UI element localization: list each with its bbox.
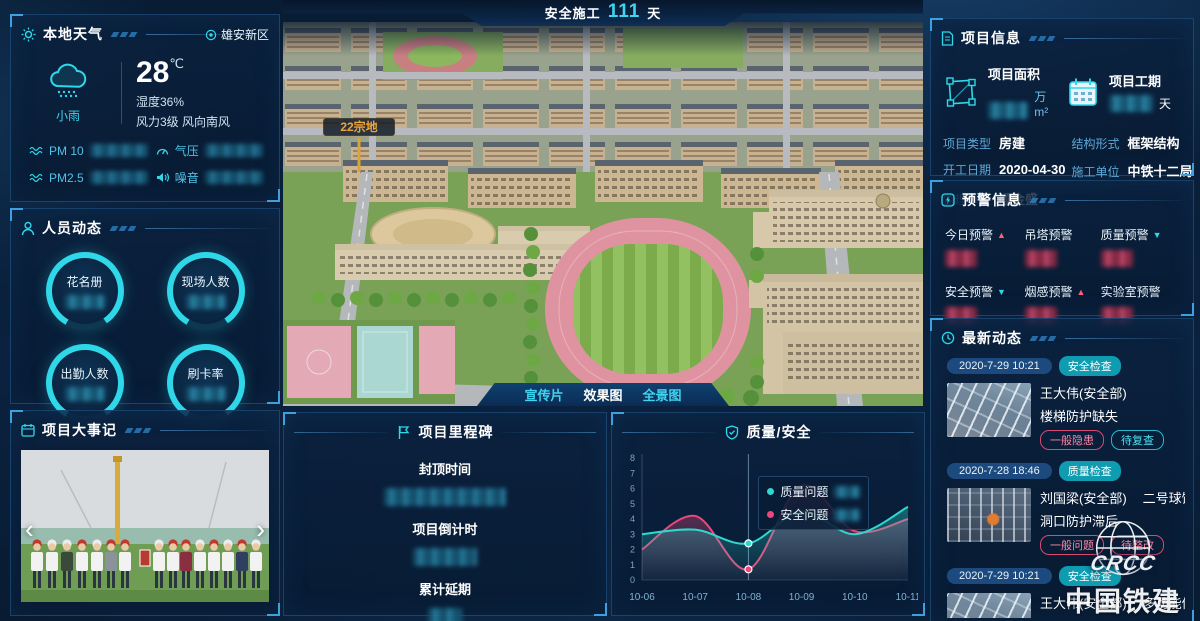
project-info-panel: 项目信息 项目面积 万m² 项目工期 天 xyxy=(930,18,1194,176)
info-label: 施工单位 xyxy=(1072,163,1120,180)
warning-label: 烟感预警 xyxy=(1025,283,1073,300)
ring-label: 刷卡率 xyxy=(187,365,223,382)
entry-date: 2020-7-29 10:21 xyxy=(947,358,1052,374)
entry-head: 2020-7-29 10:21安全检查 xyxy=(947,356,1185,376)
calendar-icon xyxy=(21,423,35,437)
pm-wave-icon xyxy=(29,146,43,156)
warning-label-row: 安全预警▼ xyxy=(945,283,1017,300)
data-point-marker xyxy=(745,540,752,547)
weather-metric-label: 气压 xyxy=(175,142,199,159)
project-duration-stat: 项目工期 天 xyxy=(1066,64,1181,119)
weather-panel: 本地天气 雄安新区 小雨 28℃ 湿度36% 风力3级 风向南风 PM 10气 xyxy=(10,14,280,202)
warnings-title: 预警信息 xyxy=(962,190,1022,210)
svg-text:3: 3 xyxy=(630,529,635,539)
entry-name-line: 王大伟(安全部) xyxy=(1040,383,1164,402)
cloud-rain-icon xyxy=(45,62,91,100)
weather-condition: 小雨 xyxy=(29,107,107,124)
up-trend-icon: ▲ xyxy=(1077,287,1086,297)
ring-label: 花名册 xyxy=(66,273,102,290)
aerial-render: 22宗地 xyxy=(283,22,923,406)
info-label: 结构形式 xyxy=(1072,135,1120,152)
weather-metric-4: 噪音 xyxy=(156,169,265,186)
info-row-2: 结构形式框架结构 xyxy=(1072,133,1193,152)
warning-label-row: 质量预警▼ xyxy=(1101,226,1179,243)
project-area-stat: 项目面积 万m² xyxy=(943,64,1058,119)
svg-text:5: 5 xyxy=(630,499,635,509)
personnel-title: 人员动态 xyxy=(42,218,102,238)
alert-lightning-icon xyxy=(941,193,955,207)
legend-label: 安全问题 xyxy=(780,506,828,523)
safety-days-unit: 天 xyxy=(647,3,661,22)
weather-metric-value-redacted xyxy=(205,144,263,157)
x-tick-label: 10-07 xyxy=(682,592,708,603)
noise-speaker-icon xyxy=(156,172,169,183)
weather-metric-value-redacted xyxy=(205,171,263,184)
milestone-label-1: 封顶时间 xyxy=(419,459,471,478)
issue-text: 楼梯防护缺失 xyxy=(1040,406,1164,425)
crane-mast xyxy=(115,456,120,544)
entry-text: 王大伟(安全部)楼梯防护缺失一般隐患待复查 xyxy=(1040,383,1164,450)
personnel-panel: 人员动态 花名册现场人数出勤人数刷卡率 xyxy=(10,208,280,404)
ring-label: 出勤人数 xyxy=(60,365,108,382)
project-area-value-redacted xyxy=(988,102,1028,119)
inspector-name: 刘国梁(安全部) xyxy=(1040,488,1127,507)
region-badge: 雄安新区 xyxy=(205,26,269,43)
events-title: 项目大事记 xyxy=(42,420,117,440)
progress-ring: 花名册 xyxy=(46,252,124,330)
status-tag: 待复查 xyxy=(1111,430,1164,450)
running-track xyxy=(545,218,751,400)
project-duration-unit: 天 xyxy=(1159,95,1171,112)
svg-text:2: 2 xyxy=(630,545,635,555)
entry-name-line: 刘国梁(安全部)二号球馆 xyxy=(1040,488,1185,507)
photo-prev-button[interactable]: ‹ xyxy=(25,516,34,542)
safety-days-count: 111 xyxy=(608,1,641,23)
document-icon xyxy=(941,31,954,46)
events-panel: 项目大事记 ‹ › xyxy=(10,410,280,616)
temperature-unit: ℃ xyxy=(169,56,184,71)
svg-text:7: 7 xyxy=(630,468,635,478)
svg-text:6: 6 xyxy=(630,484,635,494)
warning-item-1: 今日预警▲ xyxy=(945,226,1017,267)
data-point-marker xyxy=(745,566,752,573)
warning-label-row: 吊塔预警 xyxy=(1025,226,1093,243)
info-value: 框架结构 xyxy=(1128,133,1180,152)
legend-label: 质量问题 xyxy=(780,483,828,500)
quality-safety-chart: 01234567810-0610-0710-0810-0910-1010-11 … xyxy=(616,448,920,619)
x-tick-label: 10-06 xyxy=(629,592,655,603)
map-view-switcher: 宣传片效果图全景图 xyxy=(477,383,729,406)
project-area-label: 项目面积 xyxy=(988,64,1058,83)
sun-icon xyxy=(21,27,36,42)
feed-entry-1[interactable]: 2020-7-29 10:21安全检查王大伟(安全部)楼梯防护缺失一般隐患待复查 xyxy=(947,356,1185,450)
entry-head: 2020-7-28 18:46质量检查 xyxy=(947,461,1185,481)
safety-days-label: 安全施工 xyxy=(545,3,601,22)
plot-label[interactable]: 22宗地 xyxy=(323,118,395,136)
site-3d-map[interactable]: 22宗地 安全施工 111 天 宣传片效果图全景图 xyxy=(283,0,923,406)
feed-title: 最新动态 xyxy=(962,328,1022,348)
ring-core: 花名册 xyxy=(52,258,118,324)
warning-label: 实验室预警 xyxy=(1101,283,1161,300)
tooltip-value-redacted xyxy=(834,509,860,521)
x-tick-label: 10-09 xyxy=(789,592,815,603)
weather-metric-2: 气压 xyxy=(156,142,265,159)
entry-photo xyxy=(947,383,1031,437)
warning-label-row: 实验室预警 xyxy=(1101,283,1179,300)
entry-type-badge: 质量检查 xyxy=(1059,461,1121,481)
svg-text:4: 4 xyxy=(630,514,635,524)
ring-core: 刷卡率 xyxy=(173,350,239,416)
entry-body: 王大伟(安全部)楼梯防护缺失一般隐患待复查 xyxy=(947,383,1185,450)
tooltip-row-2: 安全问题 xyxy=(767,506,860,523)
x-tick-label: 10-11 xyxy=(896,592,918,603)
x-tick-label: 10-10 xyxy=(842,592,868,603)
tooltip-value-redacted xyxy=(834,486,860,498)
tag-row: 一般隐患待复查 xyxy=(1040,430,1164,450)
project-info-title: 项目信息 xyxy=(961,28,1021,48)
project-duration-label: 项目工期 xyxy=(1109,71,1171,90)
milestone-title: 项目里程碑 xyxy=(419,422,494,442)
calendar-icon xyxy=(1066,75,1100,109)
weather-metric-3: PM2.5 xyxy=(29,169,148,186)
warning-value-redacted xyxy=(1101,250,1133,267)
sports-courts xyxy=(283,320,455,404)
milestone-value-redacted xyxy=(384,488,506,506)
flag-icon xyxy=(397,425,411,440)
ring-value-redacted xyxy=(65,387,105,401)
project-duration-value-redacted xyxy=(1109,95,1153,112)
inspector-name: 王大伟(安全部) xyxy=(1040,383,1127,402)
venue-name: 二号球馆 xyxy=(1143,488,1185,507)
person-icon xyxy=(21,221,35,236)
down-trend-icon: ▼ xyxy=(1153,230,1162,240)
svg-text:0: 0 xyxy=(630,575,635,585)
view-button-3[interactable]: 全景图 xyxy=(643,385,682,404)
humidity: 湿度36% xyxy=(136,93,230,110)
warnings-panel: 预警信息 今日预警▲吊塔预警质量预警▼安全预警▼烟感预警▲实验室预警 xyxy=(930,180,1194,316)
crcc-logo: CRCC 中国铁建 xyxy=(1052,518,1194,619)
ring-label: 现场人数 xyxy=(181,273,229,290)
entry-date: 2020-7-29 10:21 xyxy=(947,568,1052,584)
photo-next-button[interactable]: › xyxy=(256,516,265,542)
temperature-value: 28 xyxy=(136,56,169,89)
ring-value-redacted xyxy=(65,295,105,309)
region-name: 雄安新区 xyxy=(221,26,269,43)
clock-icon xyxy=(941,331,955,345)
weather-metric-1: PM 10 xyxy=(29,142,148,159)
warning-item-3: 质量预警▼ xyxy=(1101,226,1179,267)
shield-check-icon xyxy=(725,425,739,440)
entry-type-badge: 安全检查 xyxy=(1059,356,1121,376)
milestone-value-redacted xyxy=(413,548,477,566)
milestone-label-3: 累计延期 xyxy=(419,579,471,598)
view-button-1[interactable]: 宣传片 xyxy=(524,385,563,404)
legend-dot xyxy=(767,511,774,518)
warning-label: 吊塔预警 xyxy=(1025,226,1073,243)
warning-item-2: 吊塔预警 xyxy=(1025,226,1093,267)
milestone-photo: ‹ › xyxy=(21,450,269,607)
status-tag: 一般隐患 xyxy=(1040,430,1104,450)
weather-metric-value-redacted xyxy=(90,144,148,157)
milestone-panel: 项目里程碑 封顶时间项目倒计时累计延期 xyxy=(283,412,607,616)
entry-photo xyxy=(947,488,1031,542)
quality-safety-panel: 质量/安全 01234567810-0610-0710-0810-0910-10… xyxy=(611,412,925,616)
weather-title: 本地天气 xyxy=(43,24,103,44)
chart-tooltip: 质量问题安全问题 xyxy=(758,476,869,530)
ring-value-redacted xyxy=(186,295,226,309)
svg-text:22宗地: 22宗地 xyxy=(340,119,377,134)
entry-photo xyxy=(947,593,1031,618)
personnel-ring-2[interactable]: 现场人数 xyxy=(167,252,245,330)
warning-label-row: 烟感预警▲ xyxy=(1025,283,1093,300)
info-row-1: 项目类型房建 xyxy=(943,133,1066,152)
info-value: 2020-04-30 xyxy=(999,162,1066,177)
group-photo xyxy=(21,450,269,602)
view-button-2[interactable]: 效果图 xyxy=(583,385,622,404)
weather-metrics: PM 10气压PM2.5噪音 xyxy=(29,142,265,186)
info-label: 项目类型 xyxy=(943,135,991,152)
wind: 风力3级 风向南风 xyxy=(136,113,230,130)
info-value: 房建 xyxy=(999,133,1025,152)
entry-date: 2020-7-28 18:46 xyxy=(947,463,1052,479)
svg-text:1: 1 xyxy=(630,560,635,570)
warning-label: 今日预警 xyxy=(945,226,993,243)
crcc-logo-text: CRCC xyxy=(1088,552,1158,576)
progress-ring: 现场人数 xyxy=(167,252,245,330)
milestone-value-redacted xyxy=(428,608,462,621)
ring-core: 现场人数 xyxy=(173,258,239,324)
legend-dot xyxy=(767,488,774,495)
warning-label: 安全预警 xyxy=(945,283,993,300)
info-value: 中铁十二局 xyxy=(1128,161,1193,180)
weather-metric-label: 噪音 xyxy=(175,169,199,186)
warning-label: 质量预警 xyxy=(1101,226,1149,243)
warning-label-row: 今日预警▲ xyxy=(945,226,1017,243)
warning-value-redacted xyxy=(945,250,977,267)
weather-metric-label: PM 10 xyxy=(49,144,84,158)
x-tick-label: 10-08 xyxy=(736,592,762,603)
info-row-4: 施工单位中铁十二局 xyxy=(1072,161,1193,180)
quality-safety-title: 质量/安全 xyxy=(747,422,812,442)
info-label: 开工日期 xyxy=(943,161,991,178)
warning-value-redacted xyxy=(1025,250,1057,267)
down-trend-icon: ▼ xyxy=(997,287,1006,297)
personnel-ring-1[interactable]: 花名册 xyxy=(46,252,124,330)
location-pin-icon xyxy=(205,29,217,41)
info-row-3: 开工日期2020-04-30 xyxy=(943,161,1066,180)
weather-metric-value-redacted xyxy=(90,171,148,184)
weather-metric-label: PM2.5 xyxy=(49,171,84,185)
ring-core: 出勤人数 xyxy=(52,350,118,416)
project-area-unit: 万m² xyxy=(1034,88,1058,119)
pm-wave-icon xyxy=(29,173,43,183)
crcc-logo-cn: 中国铁建 xyxy=(1052,580,1194,619)
dashboard: 22宗地 安全施工 111 天 宣传片效果图全景图 本地天气 xyxy=(0,0,1200,621)
tooltip-row-1: 质量问题 xyxy=(767,483,860,500)
up-trend-icon: ▲ xyxy=(997,230,1006,240)
area-icon xyxy=(943,74,979,110)
svg-text:8: 8 xyxy=(630,453,635,463)
ring-value-redacted xyxy=(186,387,226,401)
pressure-gauge-icon xyxy=(156,145,169,156)
gym-buildings xyxy=(749,190,923,394)
milestone-label-2: 项目倒计时 xyxy=(412,519,477,538)
